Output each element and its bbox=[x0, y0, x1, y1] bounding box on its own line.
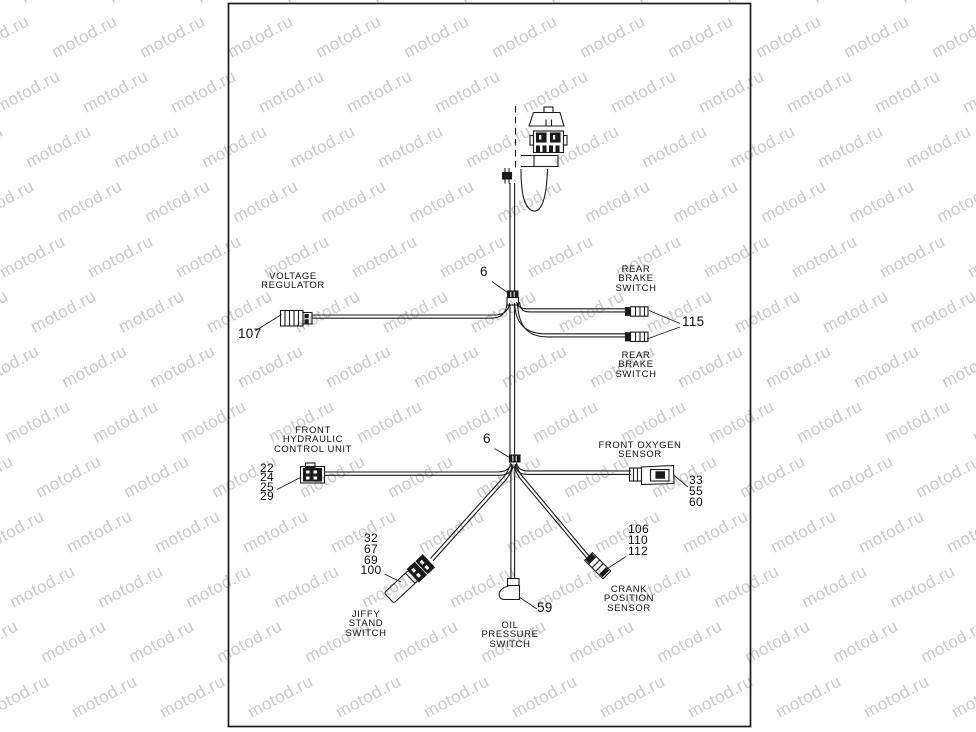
main-harness bbox=[510, 183, 515, 455]
wire-to-front-hydraulic-control-unit bbox=[324, 463, 513, 475]
oil-pressure-switch-connector bbox=[499, 579, 519, 600]
main-harness-top-connector bbox=[503, 106, 568, 211]
rear-brake-switch-lower-connector bbox=[626, 332, 649, 341]
wire-to-voltage-regulator bbox=[312, 303, 510, 318]
wire-to-oil-pressure-switch bbox=[511, 464, 516, 579]
crank-position-sensor-connector bbox=[585, 553, 611, 579]
cable-clamp-lower-symbol bbox=[510, 455, 521, 462]
wire-to-front-oxygen-sensor bbox=[515, 463, 631, 474]
parts-diagram-page: motod.rumotod.rumotod.rumotod.rumotod.ru… bbox=[0, 0, 976, 732]
rear-brake-switch-upper-connector bbox=[626, 307, 649, 316]
front-oxygen-sensor-connector bbox=[630, 466, 675, 485]
wire-to-rear-brake-switch-lower bbox=[515, 303, 627, 337]
wire-to-jiffy-stand-switch bbox=[431, 465, 514, 561]
cable-strap-top bbox=[503, 168, 512, 184]
leader-lines bbox=[255, 282, 688, 610]
voltage-regulator-connector bbox=[281, 311, 313, 327]
wire-to-crank-position-sensor bbox=[514, 465, 590, 559]
diagram-border bbox=[229, 4, 751, 727]
jiffy-stand-switch-connector bbox=[383, 555, 434, 604]
wire-to-rear-brake-switch-upper bbox=[517, 302, 627, 312]
wiring-harness-diagram bbox=[0, 0, 976, 732]
front-hydraulic-control-unit-connector bbox=[301, 463, 325, 483]
